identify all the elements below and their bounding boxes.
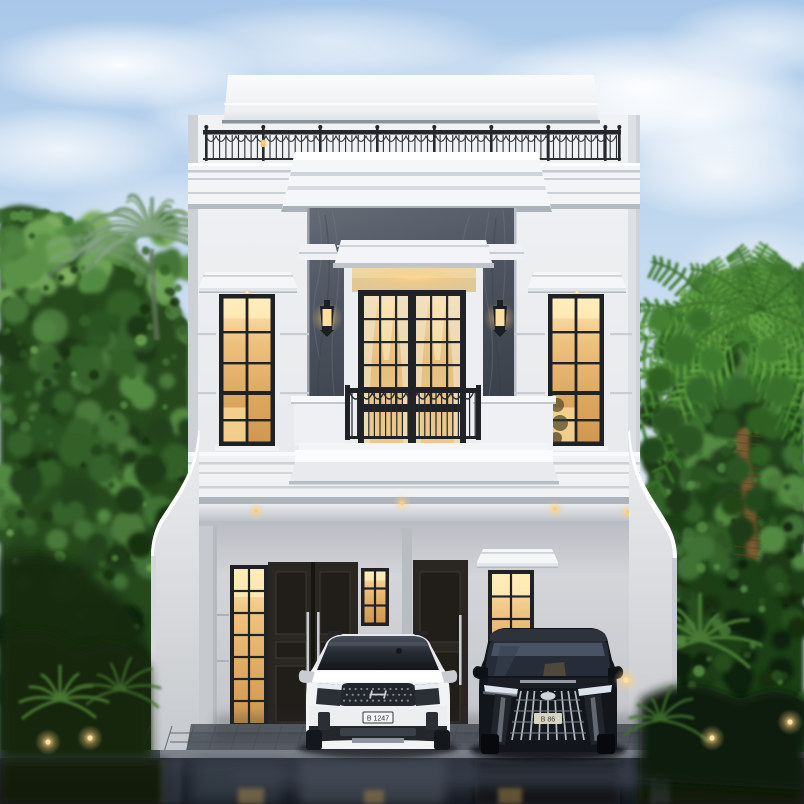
svg-text:B 86: B 86 <box>541 717 556 724</box>
svg-text:B 1247: B 1247 <box>367 716 389 723</box>
